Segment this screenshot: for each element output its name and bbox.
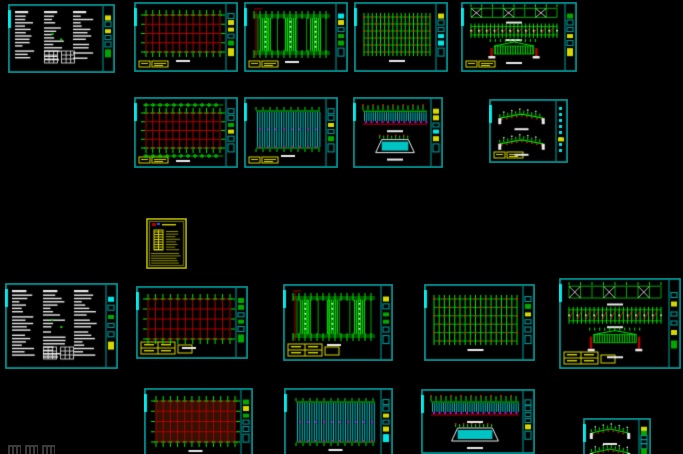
drawing-sheet-wall-elevation-1[interactable] <box>353 97 443 168</box>
drawing-sheet-general-notes-2[interactable] <box>5 283 118 369</box>
sheet-drawing-canvas <box>421 389 535 454</box>
drawing-sheet-roof-sheeting-plan-2[interactable] <box>284 388 393 454</box>
sheet-drawing-canvas <box>144 388 253 454</box>
drawing-sheet-general-notes-1[interactable] <box>8 4 115 73</box>
sheet-drawing-canvas <box>244 97 338 168</box>
drawing-sheet-purlin-plan-2[interactable] <box>424 284 535 361</box>
sheet-drawing-canvas <box>489 99 568 163</box>
drawing-sheet-foundation-plan-2[interactable] <box>136 286 248 359</box>
sheet-drawing-canvas <box>136 286 248 359</box>
sheet-drawing-canvas <box>559 278 681 369</box>
sheet-drawing-canvas <box>134 2 238 72</box>
drawing-sheet-wall-elevation-2[interactable] <box>421 389 535 454</box>
sheet-drawing-canvas <box>353 97 443 168</box>
watermark-glyph <box>42 445 55 454</box>
drawing-sheet-floor-grid-filled[interactable] <box>144 388 253 454</box>
sheet-drawing-canvas <box>424 284 535 361</box>
drawing-sheet-roof-framing-plan-1[interactable] <box>244 2 348 72</box>
drawing-sheet-roof-framing-plan-2[interactable] <box>283 284 393 361</box>
sheet-drawing-canvas <box>284 388 393 454</box>
watermark-glyph <box>8 445 21 454</box>
watermark-text <box>8 445 55 454</box>
drawing-sheet-roof-sheeting-plan-1[interactable] <box>244 97 338 168</box>
drawing-sheet-frame-sections-1[interactable] <box>489 99 568 163</box>
sheet-drawing-canvas <box>354 2 448 72</box>
drawing-sheet-column-grid-plan[interactable] <box>134 97 238 168</box>
drawing-sheet-elevation-sheet-1[interactable] <box>461 2 577 72</box>
drawing-sheet-purlin-plan-1[interactable] <box>354 2 448 72</box>
drawing-sheet-foundation-plan-1[interactable] <box>134 2 238 72</box>
sheet-drawing-canvas <box>461 2 577 72</box>
cad-model-space[interactable] <box>0 0 683 454</box>
sheet-drawing-canvas <box>8 4 115 73</box>
drawing-sheet-detail-sheet-yellow[interactable] <box>146 218 187 269</box>
sheet-drawing-canvas <box>244 2 348 72</box>
watermark-glyph <box>25 445 38 454</box>
sheet-drawing-canvas <box>283 284 393 361</box>
drawing-sheet-elevation-sheet-2[interactable] <box>559 278 681 369</box>
sheet-drawing-canvas <box>5 283 118 369</box>
drawing-sheet-frame-sections-2[interactable] <box>583 418 651 454</box>
sheet-drawing-canvas <box>583 418 651 454</box>
sheet-drawing-canvas <box>146 218 187 269</box>
sheet-drawing-canvas <box>134 97 238 168</box>
